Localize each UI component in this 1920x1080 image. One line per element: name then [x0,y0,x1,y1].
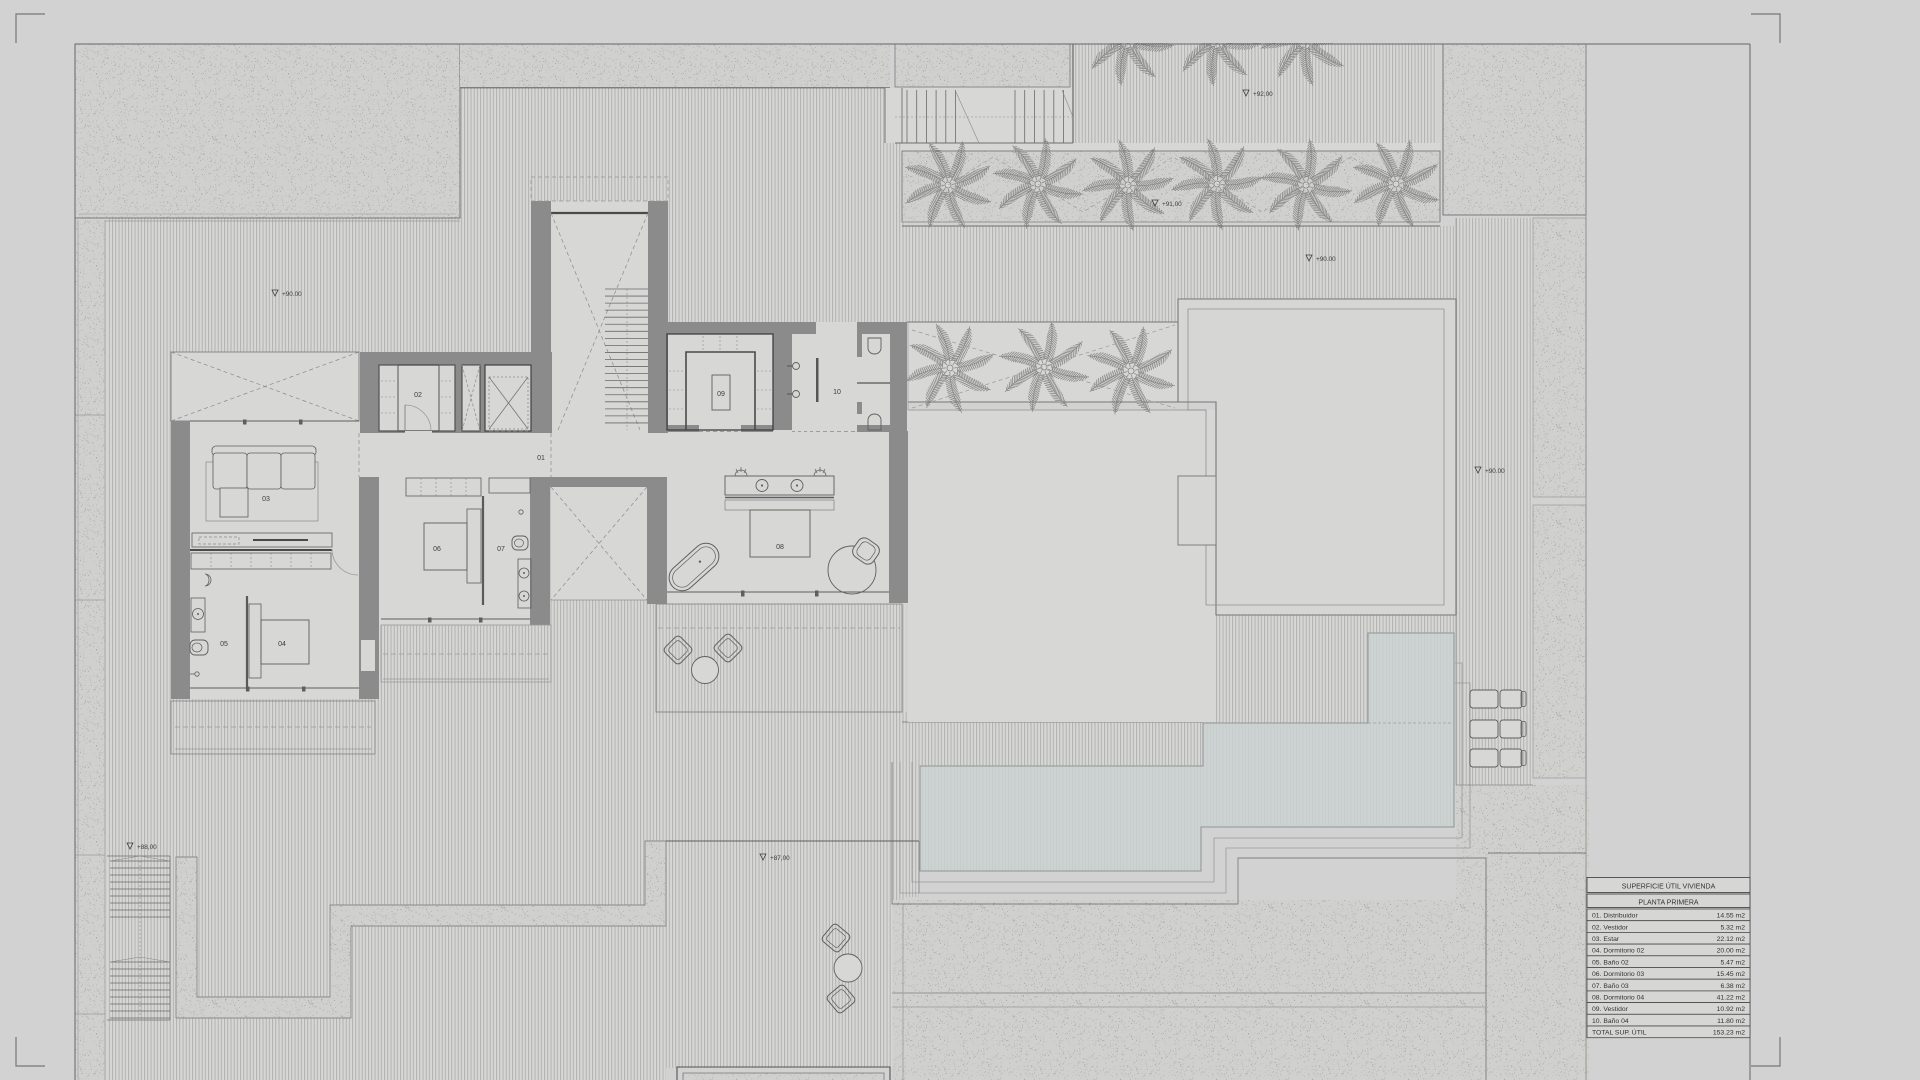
svg-text:08: 08 [776,544,784,551]
svg-text:41.22 m2: 41.22 m2 [1717,995,1746,1002]
svg-text:07: 07 [497,546,505,553]
svg-text:PLANTA PRIMERA: PLANTA PRIMERA [1638,900,1698,907]
svg-text:15.45 m2: 15.45 m2 [1717,971,1746,978]
svg-text:04: 04 [278,641,286,648]
svg-text:02: 02 [414,392,422,399]
svg-text:02. Vestidor: 02. Vestidor [1592,924,1629,931]
svg-text:14.55 m2: 14.55 m2 [1717,913,1746,920]
svg-text:08. Dormitorio 04: 08. Dormitorio 04 [1592,995,1644,1002]
svg-text:+92,00: +92,00 [1253,91,1273,98]
svg-text:22.12 m2: 22.12 m2 [1717,936,1746,943]
svg-text:+90.00: +90.00 [1485,468,1505,475]
svg-text:05. Baño 02: 05. Baño 02 [1592,959,1629,966]
svg-text:03: 03 [262,496,270,503]
svg-text:09. Vestidor: 09. Vestidor [1592,1006,1629,1013]
svg-text:06: 06 [433,546,441,553]
svg-text:6.38 m2: 6.38 m2 [1720,983,1745,990]
svg-text:20.00 m2: 20.00 m2 [1717,948,1746,955]
svg-text:+88,00: +88,00 [137,844,157,851]
svg-text:05: 05 [220,641,228,648]
svg-text:09: 09 [717,391,725,398]
svg-text:01: 01 [537,455,545,462]
svg-text:10.92 m2: 10.92 m2 [1717,1006,1746,1013]
svg-text:+90.00: +90.00 [282,291,302,298]
svg-text:07. Baño 03: 07. Baño 03 [1592,983,1629,990]
svg-text:03. Estar: 03. Estar [1592,936,1620,943]
svg-text:04. Dormitorio 02: 04. Dormitorio 02 [1592,948,1644,955]
svg-text:5.47 m2: 5.47 m2 [1720,959,1745,966]
svg-text:10. Baño 04: 10. Baño 04 [1592,1018,1629,1025]
svg-text:06. Dormitorio 03: 06. Dormitorio 03 [1592,971,1644,978]
svg-text:01. Distribuidor: 01. Distribuidor [1592,913,1638,920]
svg-text:+90.00: +90.00 [1316,256,1336,263]
svg-text:10: 10 [833,389,841,396]
svg-text:SUPERFICIE ÚTIL VIVIENDA: SUPERFICIE ÚTIL VIVIENDA [1622,882,1716,891]
svg-text:153.23 m2: 153.23 m2 [1713,1030,1745,1037]
svg-text:+91,00: +91,00 [1162,201,1182,208]
svg-text:+87,00: +87,00 [770,855,790,862]
svg-text:5.32 m2: 5.32 m2 [1720,924,1745,931]
svg-text:TOTAL SUP. ÚTIL: TOTAL SUP. ÚTIL [1592,1028,1647,1037]
svg-text:11.80 m2: 11.80 m2 [1717,1018,1745,1025]
